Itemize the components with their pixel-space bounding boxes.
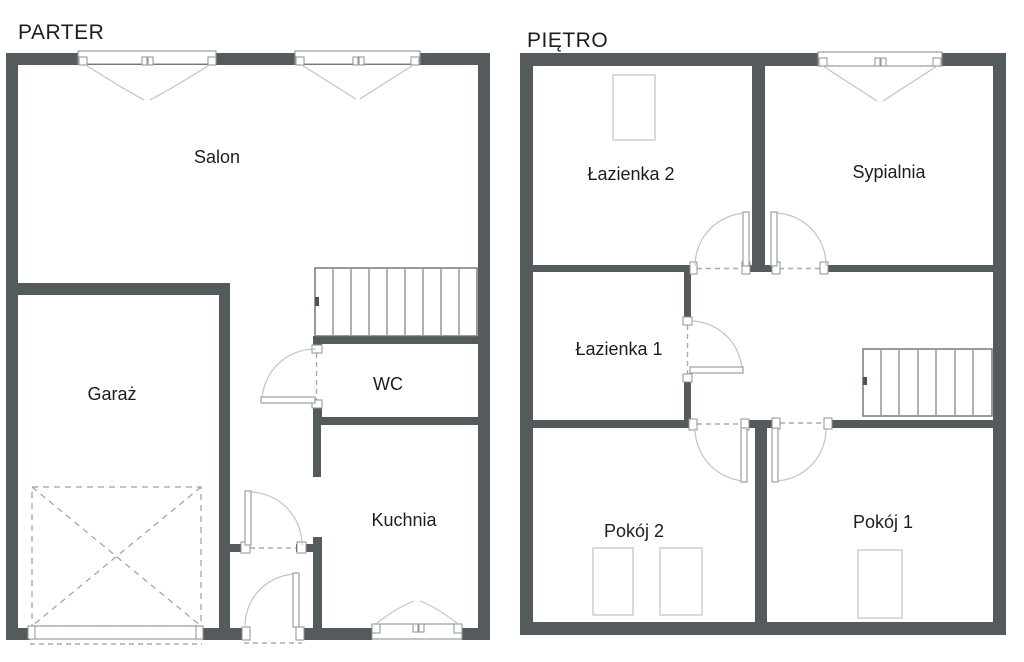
window-jamb [372, 624, 380, 633]
bath1-door [683, 317, 743, 382]
door-leaf [690, 367, 743, 373]
lower-corridor-wall-left [533, 420, 694, 428]
room-label-garaz: Garaż [87, 384, 136, 404]
door-jamb [242, 627, 250, 640]
window-casement-arcs [823, 66, 937, 101]
window-jamb [411, 57, 419, 65]
parter-wall-bottom-seg1 [6, 628, 30, 640]
window-jamb [454, 624, 462, 633]
door-swing-arc [691, 321, 742, 370]
window-jamb [208, 57, 216, 65]
door-swing-arc [775, 428, 826, 481]
door-jamb [683, 317, 692, 325]
window-casement-arcs [84, 64, 211, 100]
stairs-mark [315, 297, 319, 306]
bath2-fixture [613, 75, 655, 140]
room-label-lazienka2: Łazienka 2 [587, 164, 674, 184]
door-jamb [683, 374, 692, 382]
door-swing-arc [695, 428, 744, 481]
window-jamb [933, 58, 941, 66]
lower-corridor-wall-center [746, 420, 773, 428]
floorplan-canvas: PARTER Salon Garaż WC Kuchnia [0, 0, 1024, 662]
door-leaf [261, 397, 315, 403]
door-jamb [820, 262, 828, 274]
parter-title: PARTER [18, 21, 104, 44]
stairs-outline [315, 268, 477, 336]
room-label-kuchnia: Kuchnia [371, 510, 437, 530]
room2-bed-2 [660, 548, 702, 615]
bath1-right-wall-upper [684, 272, 691, 320]
upper-corridor-wall-right [826, 265, 993, 272]
rooms-divider-wall [755, 428, 767, 622]
pietro-wall-bottom [520, 622, 1006, 635]
lower-corridor-wall-right [828, 420, 993, 428]
pietro-title: PIĘTRO [527, 29, 608, 52]
door-jamb [690, 262, 697, 274]
door-swing-arc [245, 574, 296, 626]
hall-vestibule-door [241, 491, 306, 553]
parter-wall-bottom-seg4 [462, 628, 490, 640]
door-leaf [772, 428, 778, 482]
garage-top-wall [6, 283, 230, 295]
kitchen-left-wall-upper [313, 425, 321, 477]
window-jamb [419, 624, 424, 632]
garage-right-wall [219, 283, 230, 628]
door-leaf [293, 573, 299, 627]
understairs-wall [313, 336, 490, 344]
window-casement-arcs [377, 601, 457, 623]
parter-wall-bottom-seg3 [304, 628, 372, 640]
room1-bed [858, 550, 902, 618]
window-jamb [881, 58, 886, 66]
bedroom-door [771, 212, 828, 274]
wc-bottom-wall [313, 417, 490, 425]
room-label-pokoj2: Pokój 2 [604, 521, 664, 541]
door-swing-arc [695, 213, 746, 266]
parter-stairs [315, 268, 477, 336]
window-jamb [353, 57, 358, 65]
room2-bed-1 [593, 548, 633, 615]
room-label-pokoj1: Pokój 1 [853, 512, 913, 532]
garage-door-panel [28, 626, 203, 639]
parter-wall-left [6, 53, 18, 640]
bedroom-window [818, 52, 942, 101]
window-jamb [142, 57, 147, 65]
upper-corridor-wall-left [533, 265, 693, 272]
room-label-lazienka1: Łazienka 1 [575, 339, 662, 359]
door-jamb [296, 627, 304, 640]
garage-door [28, 626, 203, 644]
room-label-wc: WC [373, 374, 403, 394]
window-jamb [359, 57, 364, 65]
parter-wall-right [478, 53, 490, 640]
pietro-plan: PIĘTRO Łazienka 2 Sypialnia Łazienka 1 P… [520, 29, 1006, 635]
window-jamb [148, 57, 153, 65]
floorplan-page: PARTER Salon Garaż WC Kuchnia [0, 0, 1024, 662]
window-jamb [819, 58, 827, 66]
parter-wall-bottom-seg2 [203, 628, 242, 640]
door-jamb [824, 418, 832, 429]
door-leaf [245, 491, 251, 545]
salon-window-2 [295, 51, 420, 99]
window-casement-arcs [300, 64, 415, 99]
room-label-sypialnia: Sypialnia [852, 162, 926, 182]
bath2-bedroom-divider-wall [752, 66, 765, 266]
pietro-wall-right [993, 53, 1006, 635]
bath2-door [690, 212, 750, 274]
door-swing-arc [262, 349, 316, 400]
window-jamb [296, 57, 304, 65]
pietro-stairs [863, 349, 992, 416]
pietro-wall-left [520, 53, 533, 635]
entrance-door [242, 573, 304, 643]
door-leaf [741, 428, 747, 482]
window-jamb [79, 57, 87, 65]
window-jamb [413, 624, 418, 632]
door-leaf [743, 212, 749, 266]
bath1-right-wall-lower [684, 377, 691, 423]
door-jamb [689, 419, 697, 430]
door-leaf [771, 212, 777, 266]
door-swing-arc [774, 213, 826, 266]
garage-door-swing-area [32, 487, 201, 626]
wc-door [261, 345, 322, 408]
stairs-mark [863, 377, 867, 385]
room1-door [772, 418, 832, 482]
door-jamb [772, 418, 780, 429]
door-jamb [196, 626, 203, 639]
window-jamb [875, 58, 880, 66]
door-jamb [28, 626, 35, 639]
door-swing-arc [250, 492, 302, 545]
salon-window-1 [78, 51, 216, 100]
parter-plan: PARTER Salon Garaż WC Kuchnia [6, 21, 490, 644]
room-label-salon: Salon [194, 147, 240, 167]
room2-door [689, 419, 749, 482]
kitchen-window [372, 601, 462, 639]
